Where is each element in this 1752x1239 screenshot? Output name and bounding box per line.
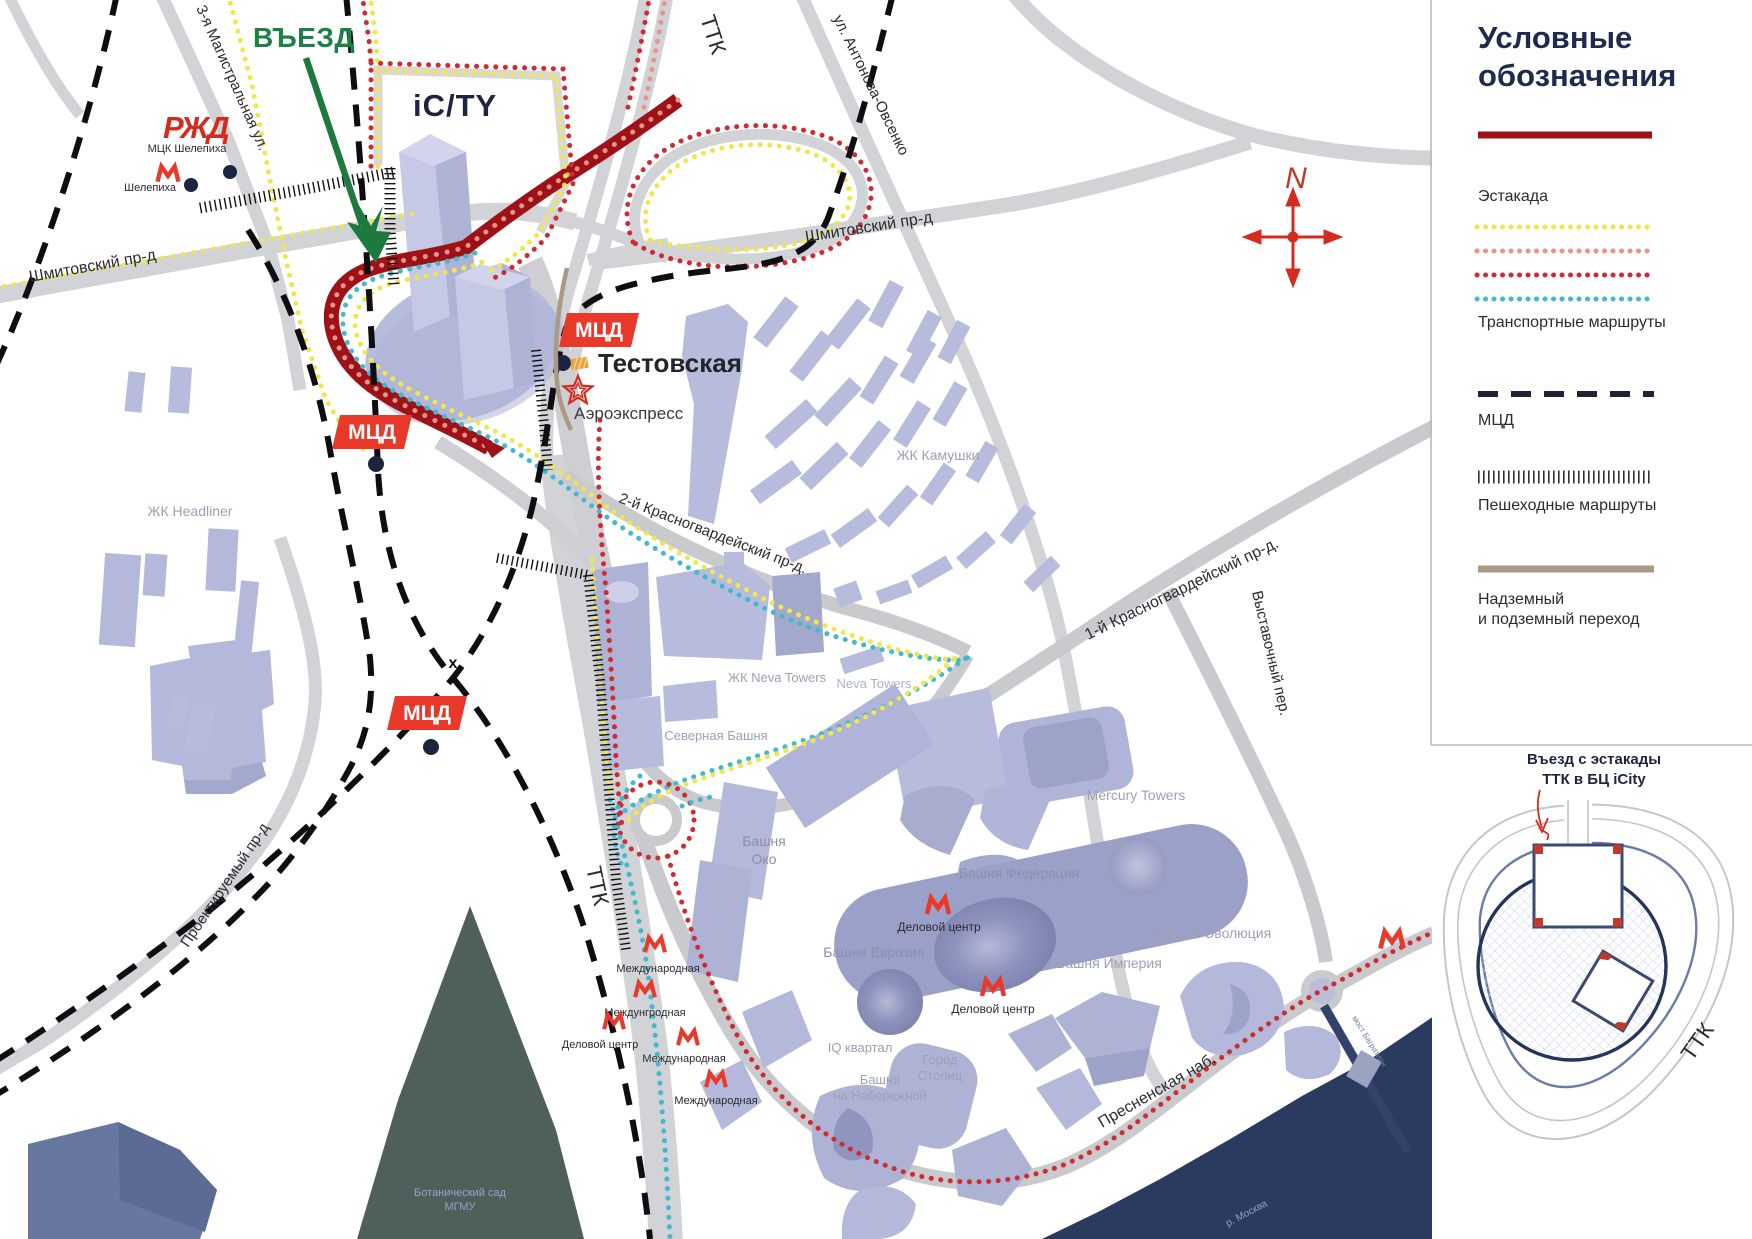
svg-text:N: N [1285,162,1307,195]
svg-text:Аэроэкспресс: Аэроэкспресс [574,404,684,423]
svg-text:Пешеходные маршруты: Пешеходные маршруты [1478,497,1656,514]
svg-text:Neva Towers: Neva Towers [837,676,912,691]
svg-text:Mercury Towers: Mercury Towers [1087,787,1186,803]
svg-text:Деловой центр: Деловой центр [897,920,981,934]
svg-text:Башня Федерация: Башня Федерация [959,865,1079,881]
svg-text:МЦД: МЦД [1478,412,1514,429]
svg-text:Деловой центр: Деловой центр [951,1002,1035,1016]
svg-text:МГМУ: МГМУ [444,1201,476,1213]
svg-text:Шелепиха: Шелепиха [124,182,177,194]
svg-text:ЖК Neva Towers: ЖК Neva Towers [728,670,827,685]
svg-text:Башня Евразия: Башня Евразия [823,944,924,960]
svg-text:IQ квартал: IQ квартал [828,1040,893,1055]
svg-text:Город: Город [922,1052,958,1067]
svg-text:МЦД: МЦД [575,319,623,342]
svg-text:Надземный: Надземный [1478,591,1564,608]
svg-text:ЖК Камушки: ЖК Камушки [897,447,980,463]
svg-text:обозначения: обозначения [1478,58,1676,93]
svg-text:Транспортные маршруты: Транспортные маршруты [1478,314,1666,331]
svg-text:Столиц: Столиц [918,1068,963,1083]
svg-text:Башня Эволюция: Башня Эволюция [1157,925,1271,941]
svg-text:МЦД: МЦД [403,702,451,725]
svg-text:Башня: Башня [860,1072,900,1087]
svg-text:Международная: Международная [674,1095,757,1107]
svg-text:Международная: Международная [616,963,699,975]
svg-text:ЖК Headliner: ЖК Headliner [148,503,233,519]
svg-text:МЦК Шелепиха: МЦК Шелепиха [148,143,228,155]
svg-text:ВЪЕЗД: ВЪЕЗД [253,22,355,53]
svg-text:на Набережной: на Набережной [833,1088,927,1103]
svg-text:РЖД: РЖД [163,110,229,145]
svg-text:Деловой центр: Деловой центр [562,1039,638,1051]
svg-text:Въезд с эстакады: Въезд с эстакады [1527,751,1661,768]
svg-text:Тестовская: Тестовская [598,348,742,378]
svg-text:x: x [449,655,458,672]
svg-text:Международная: Международная [642,1053,725,1065]
svg-text:Ботанический сад: Ботанический сад [414,1187,506,1199]
svg-text:Условные: Условные [1478,20,1632,55]
svg-text:Северная Башня: Северная Башня [664,728,767,743]
svg-text:и подземный переход: и подземный переход [1478,611,1640,628]
svg-text:МЦД: МЦД [348,421,396,444]
svg-text:Башня Империя: Башня Империя [1056,955,1162,971]
svg-text:Око: Око [752,851,777,867]
svg-text:iC/TY: iC/TY [413,88,497,123]
svg-text:ТТК в БЦ iCity: ТТК в БЦ iCity [1542,771,1646,788]
svg-text:Башня: Башня [742,833,786,849]
svg-text:Эстакада: Эстакада [1478,188,1548,205]
